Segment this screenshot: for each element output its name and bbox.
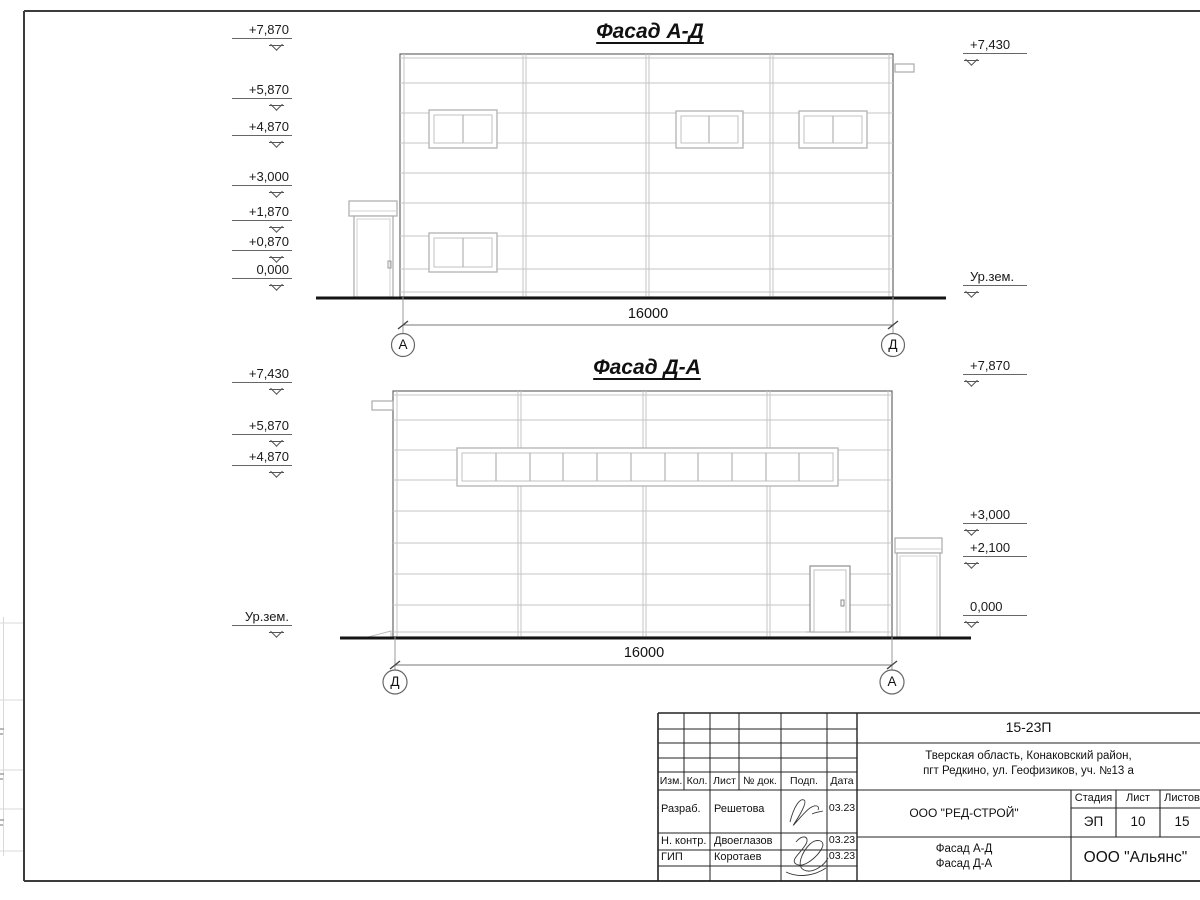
- facade-ad-pipe: [895, 64, 914, 72]
- row-name: Решетова: [714, 803, 764, 815]
- elevation-mark: +7,430: [963, 38, 1027, 61]
- facade-da-pipe: [372, 401, 393, 410]
- elevation-mark: +0,870: [232, 235, 292, 258]
- elevation-label: +2,100: [963, 541, 1027, 557]
- col-header-list: Лист: [710, 775, 739, 787]
- axis-label: А: [880, 674, 904, 689]
- elevation-label: +5,870: [232, 419, 292, 435]
- elevation-mark: +7,430: [232, 367, 292, 390]
- elevation-mark: +7,870: [232, 23, 292, 46]
- stage-value: ЭП: [1071, 814, 1116, 829]
- title-block-org: ООО "Альянс": [1071, 849, 1200, 867]
- elevation-mark: +5,870: [232, 419, 292, 442]
- elevation-label: +1,870: [232, 205, 292, 221]
- elevation-mark: +2,100: [963, 541, 1027, 564]
- sheet-label: Лист: [1116, 792, 1160, 804]
- elevation-label: Ур.зем.: [232, 610, 292, 626]
- elevation-label: +0,870: [232, 235, 292, 251]
- sheet-value: 10: [1116, 814, 1160, 829]
- facade-da-door: [806, 566, 854, 632]
- row-date: 03.23: [827, 802, 857, 814]
- row-role: ГИП: [661, 851, 683, 863]
- elevation-mark: +4,870: [232, 120, 292, 143]
- row-date: 03.23: [827, 850, 857, 862]
- facade-ad-porch: [349, 201, 397, 297]
- elevation-label: +7,870: [232, 23, 292, 39]
- col-header-doc: № док.: [739, 775, 781, 787]
- col-header-data: Дата: [827, 775, 857, 787]
- col-header-podp: Подп.: [781, 775, 827, 787]
- elevation-label: +4,870: [232, 450, 292, 466]
- row-role: Н. контр.: [661, 835, 706, 847]
- elevation-mark: +3,000: [963, 508, 1027, 531]
- col-header-kol: Кол.: [684, 775, 710, 787]
- title-block-company: ООО "РЕД-СТРОЙ": [857, 806, 1071, 820]
- row-name: Коротаев: [714, 851, 762, 863]
- facade-da-title: Фасад Д-А: [547, 356, 747, 380]
- elevation-label: Ур.зем.: [963, 270, 1027, 286]
- title-block-code: 15-23П: [857, 719, 1200, 735]
- elevation-mark: Ур.зем.: [963, 270, 1027, 293]
- signature-squiggles: [786, 800, 828, 876]
- facade-da-ramp: [368, 631, 391, 637]
- facade-da-ribbon-window: [457, 448, 838, 486]
- elevation-mark: +5,870: [232, 83, 292, 106]
- row-role: Разраб.: [661, 803, 701, 815]
- elevation-mark: 0,000: [963, 600, 1027, 623]
- facade-da-porch: [895, 538, 942, 637]
- dimension-label: 16000: [594, 645, 694, 661]
- col-header-izm: Изм.: [658, 775, 684, 787]
- elevation-label: +7,430: [232, 367, 292, 383]
- elevation-label: +7,430: [963, 38, 1027, 54]
- elevation-mark: 0,000: [232, 263, 292, 286]
- row-date: 03.23: [827, 834, 857, 846]
- elevation-mark: +1,870: [232, 205, 292, 228]
- elevation-label: +5,870: [232, 83, 292, 99]
- elevation-mark: +3,000: [232, 170, 292, 193]
- elevation-mark: Ур.зем.: [232, 610, 292, 633]
- dimension-label: 16000: [598, 306, 698, 322]
- axis-label: Д: [881, 337, 905, 352]
- axis-label: Д: [383, 674, 407, 689]
- title-block-address-line2: пгт Редкино, ул. Геофизиков, уч. №13 а: [857, 765, 1200, 777]
- elevation-label: +4,870: [232, 120, 292, 136]
- elevation-label: +3,000: [232, 170, 292, 186]
- doc-title-line1: Фасад А-Д: [857, 843, 1071, 855]
- elevation-mark: +4,870: [232, 450, 292, 473]
- elevation-label: +3,000: [963, 508, 1027, 524]
- elevation-label: 0,000: [232, 263, 292, 279]
- elevation-mark: +7,870: [963, 359, 1027, 382]
- title-block-address-line1: Тверская область, Конаковский район,: [857, 750, 1200, 762]
- elevation-label: +7,870: [963, 359, 1027, 375]
- elevation-label: 0,000: [963, 600, 1027, 616]
- axis-label: А: [391, 337, 415, 352]
- row-name: Двоеглазов: [714, 835, 772, 847]
- doc-title-line2: Фасад Д-А: [857, 858, 1071, 870]
- facade-ad-title: Фасад А-Д: [550, 20, 750, 44]
- sheets-value: 15: [1160, 814, 1200, 829]
- drawing-sheet: Фасад А-Д Фасад Д-А +7,870 +5,870 +4,870…: [0, 0, 1200, 900]
- sheets-label: Листов: [1160, 792, 1200, 804]
- stage-label: Стадия: [1071, 792, 1116, 804]
